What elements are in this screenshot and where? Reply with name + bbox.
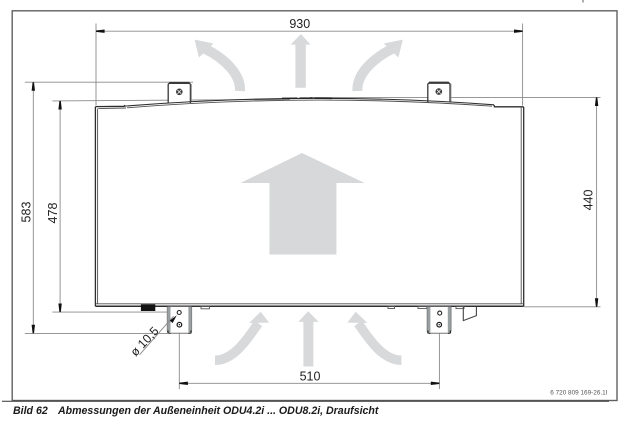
svg-text:440: 440 [581,190,595,211]
svg-text:583: 583 [19,202,33,223]
svg-text:ø 10,5: ø 10,5 [128,324,162,359]
svg-text:478: 478 [46,203,60,224]
svg-text:510: 510 [300,370,321,384]
svg-text:Abmessungen der Außeneinheit O: Abmessungen der Außeneinheit ODU4.2i ...… [57,405,379,417]
svg-text:Bild 62: Bild 62 [13,405,48,417]
svg-text:930: 930 [289,17,310,31]
svg-text:6 720 809 169-26.1I: 6 720 809 169-26.1I [550,389,607,396]
